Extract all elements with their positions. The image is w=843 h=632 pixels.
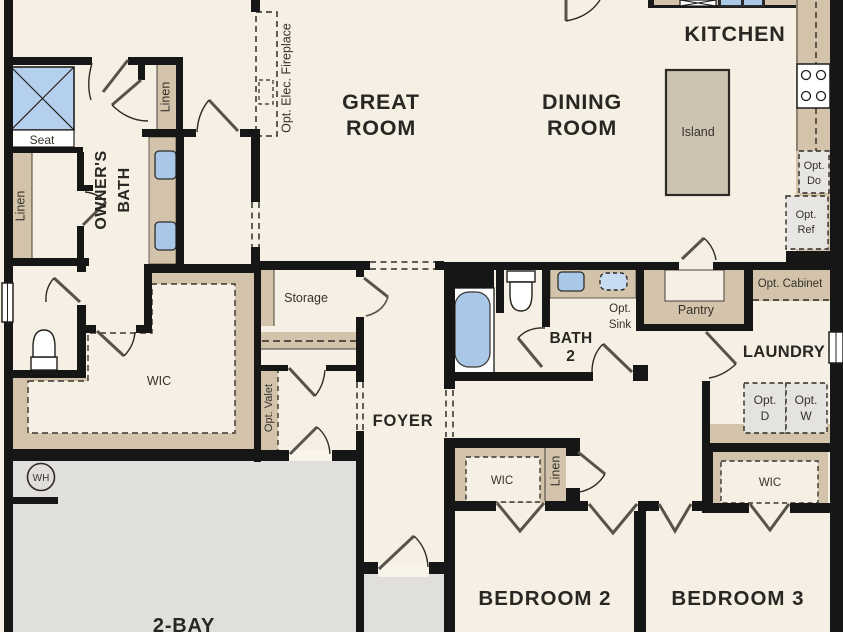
svg-text:2-BAY: 2-BAY: [153, 615, 215, 632]
svg-text:Ref: Ref: [797, 224, 815, 236]
svg-text:Linen: Linen: [548, 456, 562, 487]
svg-text:GREAT: GREAT: [342, 90, 420, 114]
svg-text:FOYER: FOYER: [373, 412, 434, 430]
svg-text:Pantry: Pantry: [678, 303, 715, 317]
svg-text:2: 2: [566, 348, 575, 365]
svg-text:WIC: WIC: [491, 475, 513, 487]
svg-text:BATH: BATH: [549, 330, 592, 347]
svg-text:Opt. Elec. Fireplace: Opt. Elec. Fireplace: [279, 23, 293, 133]
svg-text:Storage: Storage: [284, 291, 328, 305]
svg-text:LAUNDRY: LAUNDRY: [743, 343, 825, 361]
svg-text:Opt. Valet: Opt. Valet: [263, 384, 275, 432]
svg-text:W: W: [800, 409, 812, 423]
svg-text:BATH: BATH: [116, 167, 133, 212]
svg-text:Sink: Sink: [609, 319, 632, 331]
svg-text:BEDROOM 2: BEDROOM 2: [478, 587, 611, 610]
svg-text:BEDROOM 3: BEDROOM 3: [671, 587, 804, 610]
svg-text:Opt.: Opt.: [795, 393, 818, 407]
svg-text:WIC: WIC: [147, 374, 171, 388]
svg-text:Opt.: Opt.: [754, 393, 777, 407]
svg-text:Seat: Seat: [30, 133, 55, 147]
svg-text:D: D: [761, 409, 770, 423]
svg-text:DINING: DINING: [542, 90, 622, 114]
svg-text:Do: Do: [807, 175, 821, 187]
svg-text:ROOM: ROOM: [346, 116, 416, 140]
svg-text:Linen: Linen: [13, 191, 27, 222]
svg-text:Opt.: Opt.: [804, 160, 825, 172]
svg-text:WIC: WIC: [759, 477, 781, 489]
svg-text:KITCHEN: KITCHEN: [684, 22, 785, 46]
svg-text:OWNER'S: OWNER'S: [93, 150, 110, 229]
svg-text:WH: WH: [33, 473, 50, 484]
svg-text:ROOM: ROOM: [547, 116, 617, 140]
svg-text:Linen: Linen: [158, 82, 172, 113]
svg-text:Island: Island: [681, 125, 714, 139]
svg-text:Opt.: Opt.: [609, 303, 631, 315]
svg-text:Opt.: Opt.: [796, 209, 817, 221]
svg-text:Opt. Cabinet: Opt. Cabinet: [758, 278, 823, 290]
